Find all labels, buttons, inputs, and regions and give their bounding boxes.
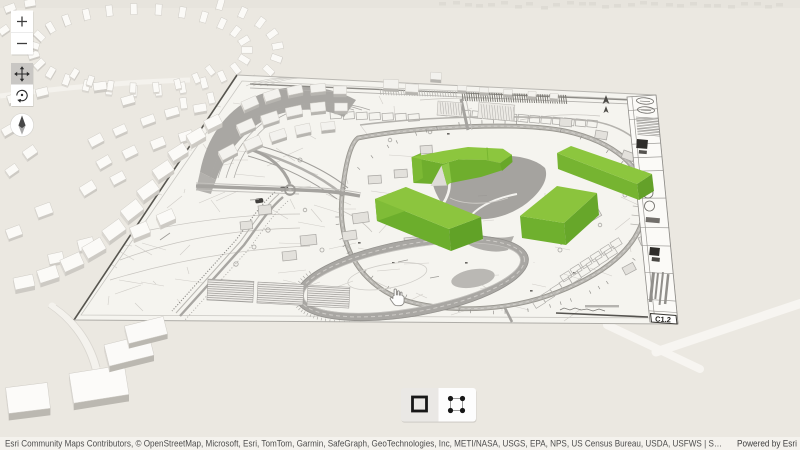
svg-text:C1.2: C1.2 [655, 315, 671, 325]
svg-text:Esri Community Maps Contributo: Esri Community Maps Contributors, © Open… [5, 439, 722, 449]
svg-text:Powered by Esri: Powered by Esri [737, 439, 797, 449]
